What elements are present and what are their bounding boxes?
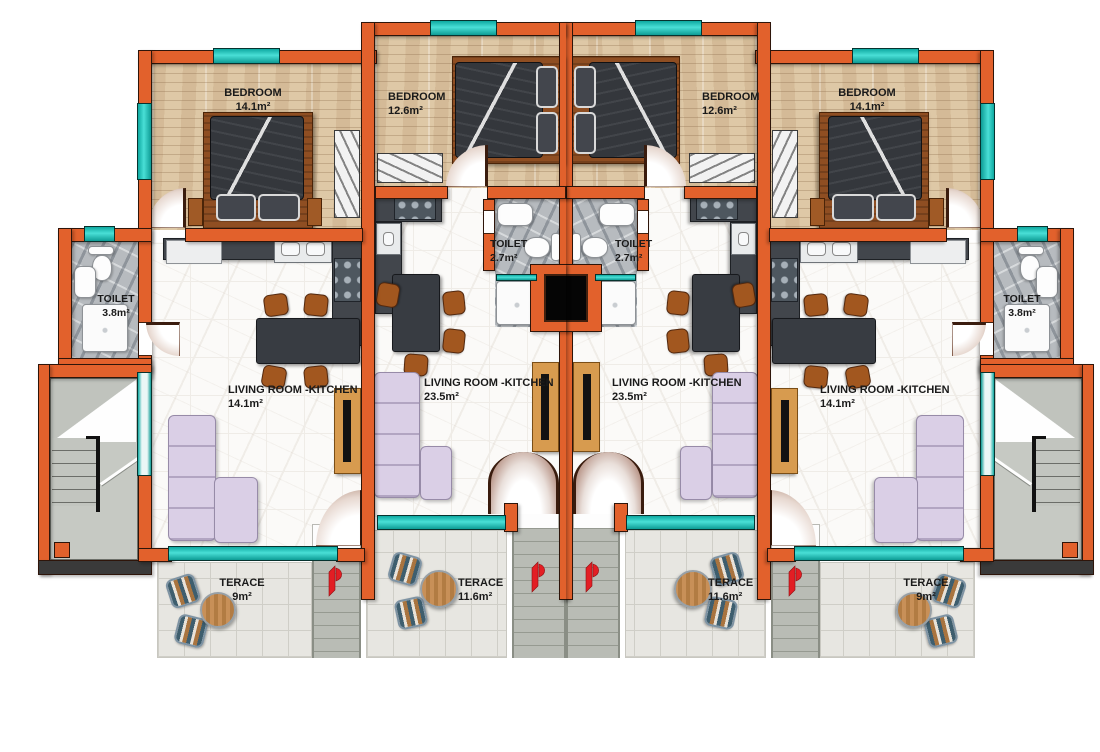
- bathroom-sink: [497, 203, 533, 226]
- sofa-chaise: [874, 477, 918, 543]
- toilet-tank: [1018, 246, 1044, 255]
- wall-post-inner: [504, 503, 518, 532]
- bed-pillow: [216, 194, 256, 221]
- dining-chair: [303, 293, 329, 317]
- brand-logo: [787, 564, 805, 600]
- room-label-living: LIVING ROOM -KITCHEN 23.5m²: [612, 376, 742, 405]
- room-label-bedroom: BEDROOM 14.1m²: [208, 86, 298, 115]
- room-label-toilet: TOILET 2.7m²: [615, 238, 652, 265]
- room-area: 12.6m²: [388, 104, 445, 118]
- room-area: 14.1m²: [822, 100, 912, 114]
- window: [137, 372, 152, 476]
- dining-chair: [666, 328, 690, 354]
- room-label-toilet: TOILET 3.8m²: [92, 293, 140, 320]
- window: [84, 226, 115, 242]
- bathroom-sink: [599, 203, 635, 226]
- tv-screen: [781, 400, 789, 462]
- wall-bottom-outer: [960, 548, 994, 562]
- window: [168, 546, 338, 561]
- wall-stairwell-left: [38, 364, 50, 574]
- floor-plan: BEDROOM 14.1m² BEDROOM 12.6m² BEDROOM 12…: [0, 0, 1100, 752]
- room-area: 11.6m²: [708, 590, 753, 604]
- bed-pillow: [258, 194, 300, 221]
- room-name: TOILET: [615, 238, 652, 252]
- toilet-door-opening: [484, 210, 494, 234]
- dining-chair: [263, 292, 290, 317]
- stair-railing-hook: [86, 436, 98, 439]
- window: [794, 546, 964, 561]
- stair-wall-stub: [1062, 542, 1078, 558]
- dining-table: [392, 274, 440, 352]
- room-name: TERACE: [458, 576, 503, 590]
- room-area: 2.7m²: [490, 252, 527, 266]
- stove-cooktop: [334, 258, 361, 302]
- room-area: 9m²: [898, 590, 954, 604]
- toilet-door-opening: [638, 210, 648, 234]
- bed-pillow: [574, 112, 596, 154]
- room-name: TOILET: [490, 238, 527, 252]
- wall-bedroom-hall: [375, 186, 448, 199]
- terrace-table: [674, 570, 712, 608]
- bed-duvet: [589, 62, 677, 158]
- room-name: LIVING ROOM -KITCHEN: [228, 383, 358, 397]
- wall-bottom-outer: [138, 548, 172, 562]
- room-area: 3.8m²: [92, 307, 140, 321]
- room-label-toilet: TOILET 2.7m²: [490, 238, 527, 265]
- stair-wall-stub: [54, 542, 70, 558]
- stair-railing-hook: [1034, 436, 1046, 439]
- sink-basin: [738, 232, 750, 246]
- stair-landing-triangle: [52, 380, 136, 442]
- room-label-living: LIVING ROOM -KITCHEN 14.1m²: [228, 383, 358, 412]
- stair-railing: [96, 436, 100, 512]
- nightstand: [307, 198, 322, 226]
- room-area: 14.1m²: [208, 100, 298, 114]
- room-name: TERACE: [708, 576, 753, 590]
- bed-duvet: [455, 62, 543, 158]
- room-name: TERACE: [214, 576, 270, 590]
- window: [496, 274, 537, 281]
- wall-stairwell-bottom: [38, 560, 152, 575]
- toilet-bowl: [582, 237, 608, 258]
- nightstand: [810, 198, 825, 226]
- nightstand: [188, 198, 203, 226]
- room-label-bedroom: BEDROOM 14.1m²: [822, 86, 912, 115]
- wall-bedroom-hall: [487, 186, 566, 199]
- bed-duvet: [210, 116, 304, 200]
- room-name: BEDROOM: [208, 86, 298, 100]
- sink-basin: [281, 242, 300, 256]
- dining-table: [772, 318, 876, 364]
- bed-duvet: [828, 116, 922, 200]
- kitchen-sink: [376, 223, 401, 255]
- room-area: 14.1m²: [228, 397, 358, 411]
- room-area: 9m²: [214, 590, 270, 604]
- window: [137, 103, 152, 180]
- sofa-chaise: [420, 446, 452, 500]
- wall-stairwell-top: [38, 364, 152, 378]
- brand-logo: [584, 560, 602, 596]
- wall-bottom-outer: [767, 548, 796, 562]
- sofa: [168, 415, 216, 541]
- brand-logo: [530, 560, 548, 596]
- bed-pillow: [574, 66, 596, 108]
- window: [980, 372, 995, 476]
- bed-pillow: [876, 194, 916, 221]
- sink-basin: [383, 232, 395, 246]
- nightstand: [929, 198, 944, 226]
- stair-railing: [1032, 436, 1036, 512]
- room-area: 11.6m²: [458, 590, 503, 604]
- window: [980, 103, 995, 180]
- room-area: 23.5m²: [424, 390, 554, 404]
- kitchen-cabinet: [910, 240, 966, 264]
- sofa: [916, 415, 964, 541]
- wall-bedroom-hall: [566, 186, 645, 199]
- dining-chair: [843, 292, 870, 317]
- window: [852, 48, 919, 64]
- toilet-tank: [88, 246, 114, 255]
- wall-bedroom-living: [185, 228, 363, 242]
- room-name: LIVING ROOM -KITCHEN: [820, 383, 950, 397]
- room-name: TOILET: [92, 293, 140, 307]
- room-name: BEDROOM: [388, 90, 445, 104]
- toilet-bowl: [524, 237, 550, 258]
- room-label-bedroom: BEDROOM 12.6m²: [388, 90, 445, 119]
- room-area: 12.6m²: [702, 104, 759, 118]
- terrace-table: [420, 570, 458, 608]
- entry-door-arc-inner: [488, 452, 559, 514]
- wardrobe: [334, 130, 360, 218]
- dining-chair: [666, 290, 690, 316]
- window: [626, 515, 755, 530]
- kitchen-cabinet: [166, 240, 222, 264]
- room-label-terrace: TERACE 11.6m²: [708, 576, 753, 605]
- entry-door-arc-inner: [573, 452, 644, 514]
- dining-chair: [731, 281, 757, 308]
- service-shaft: [566, 274, 588, 322]
- room-area: 23.5m²: [612, 390, 742, 404]
- dining-chair: [442, 290, 466, 316]
- room-label-terrace: TERACE 11.6m²: [458, 576, 503, 605]
- room-label-terrace: TERACE 9m²: [214, 576, 270, 605]
- wardrobe: [377, 153, 443, 183]
- dining-chair: [375, 281, 401, 308]
- window: [377, 515, 506, 530]
- sink-basin: [807, 242, 826, 256]
- wall-bottom-outer: [336, 548, 365, 562]
- window: [213, 48, 280, 64]
- room-name: TERACE: [898, 576, 954, 590]
- sink-basin: [832, 242, 851, 256]
- wall-bedroom-living: [769, 228, 947, 242]
- bed-pillow: [536, 112, 558, 154]
- window: [430, 20, 497, 36]
- room-label-living: LIVING ROOM -KITCHEN 23.5m²: [424, 376, 554, 405]
- brand-logo: [327, 564, 345, 600]
- wall-stairwell-bottom: [980, 560, 1094, 575]
- window: [595, 274, 636, 281]
- room-area: 3.8m²: [998, 307, 1046, 321]
- dining-chair: [803, 293, 829, 317]
- room-name: TOILET: [998, 293, 1046, 307]
- sofa-chaise: [214, 477, 258, 543]
- bed-pillow: [832, 194, 874, 221]
- kitchen-sink: [731, 223, 756, 255]
- sofa: [374, 372, 420, 498]
- sofa-chaise: [680, 446, 712, 500]
- room-area: 2.7m²: [615, 252, 652, 266]
- room-name: BEDROOM: [702, 90, 759, 104]
- sink-basin: [306, 242, 325, 256]
- wall-stairwell-top: [980, 364, 1094, 378]
- room-label-bedroom: BEDROOM 12.6m²: [702, 90, 759, 119]
- stove-cooktop: [771, 258, 798, 302]
- room-label-living: LIVING ROOM -KITCHEN 14.1m²: [820, 383, 950, 412]
- wardrobe: [772, 130, 798, 218]
- window: [1017, 226, 1048, 242]
- room-label-terrace: TERACE 9m²: [898, 576, 954, 605]
- bed-pillow: [536, 66, 558, 108]
- room-name: LIVING ROOM -KITCHEN: [424, 376, 554, 390]
- wardrobe: [689, 153, 755, 183]
- stair-steps: [1034, 438, 1080, 506]
- wall-stairwell-left: [1082, 364, 1094, 574]
- dining-chair: [442, 328, 466, 354]
- window: [635, 20, 702, 36]
- room-name: BEDROOM: [822, 86, 912, 100]
- stair-landing-triangle: [996, 380, 1080, 442]
- room-label-toilet: TOILET 3.8m²: [998, 293, 1046, 320]
- tv-screen: [583, 374, 591, 440]
- wall-unit-divider: [361, 22, 375, 600]
- wall-bedroom-hall: [684, 186, 757, 199]
- room-name: LIVING ROOM -KITCHEN: [612, 376, 742, 390]
- stair-steps: [52, 438, 98, 506]
- room-area: 14.1m²: [820, 397, 950, 411]
- service-shaft: [544, 274, 566, 322]
- wall-toilet-outer-left: [58, 228, 72, 372]
- dining-table: [256, 318, 360, 364]
- wall-toilet-outer-left: [1060, 228, 1074, 372]
